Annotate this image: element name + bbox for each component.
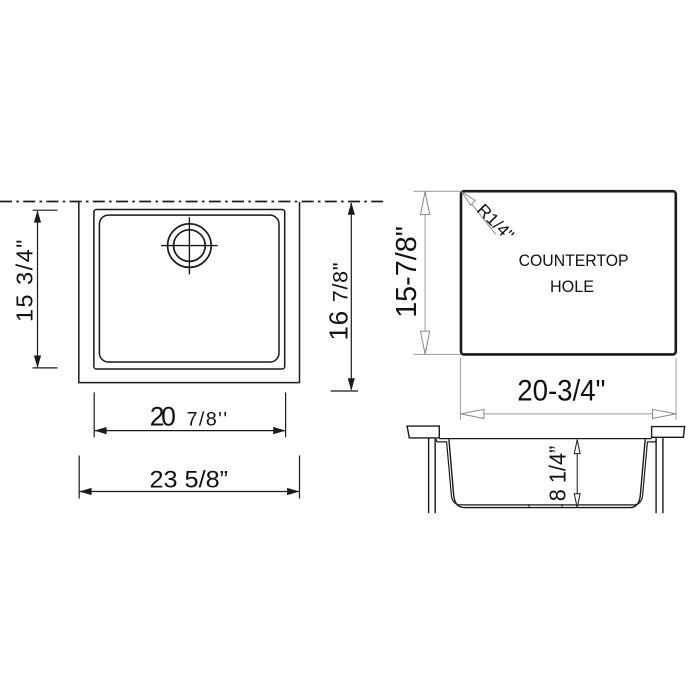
svg-text:15 3/4": 15 3/4" bbox=[11, 240, 37, 323]
svg-text:20: 20 bbox=[150, 402, 176, 432]
svg-text:COUNTERTOP: COUNTERTOP bbox=[519, 251, 629, 270]
svg-text:7/8'': 7/8'' bbox=[187, 409, 228, 431]
svg-text:15-7/8": 15-7/8" bbox=[391, 226, 423, 318]
svg-text:20-3/4": 20-3/4" bbox=[517, 375, 605, 408]
svg-text:23 5/8”: 23 5/8” bbox=[150, 467, 229, 494]
svg-text:HOLE: HOLE bbox=[550, 277, 594, 296]
svg-text:8 1/4”: 8 1/4” bbox=[545, 446, 571, 502]
svg-text:16 7/8": 16 7/8" bbox=[324, 263, 354, 341]
